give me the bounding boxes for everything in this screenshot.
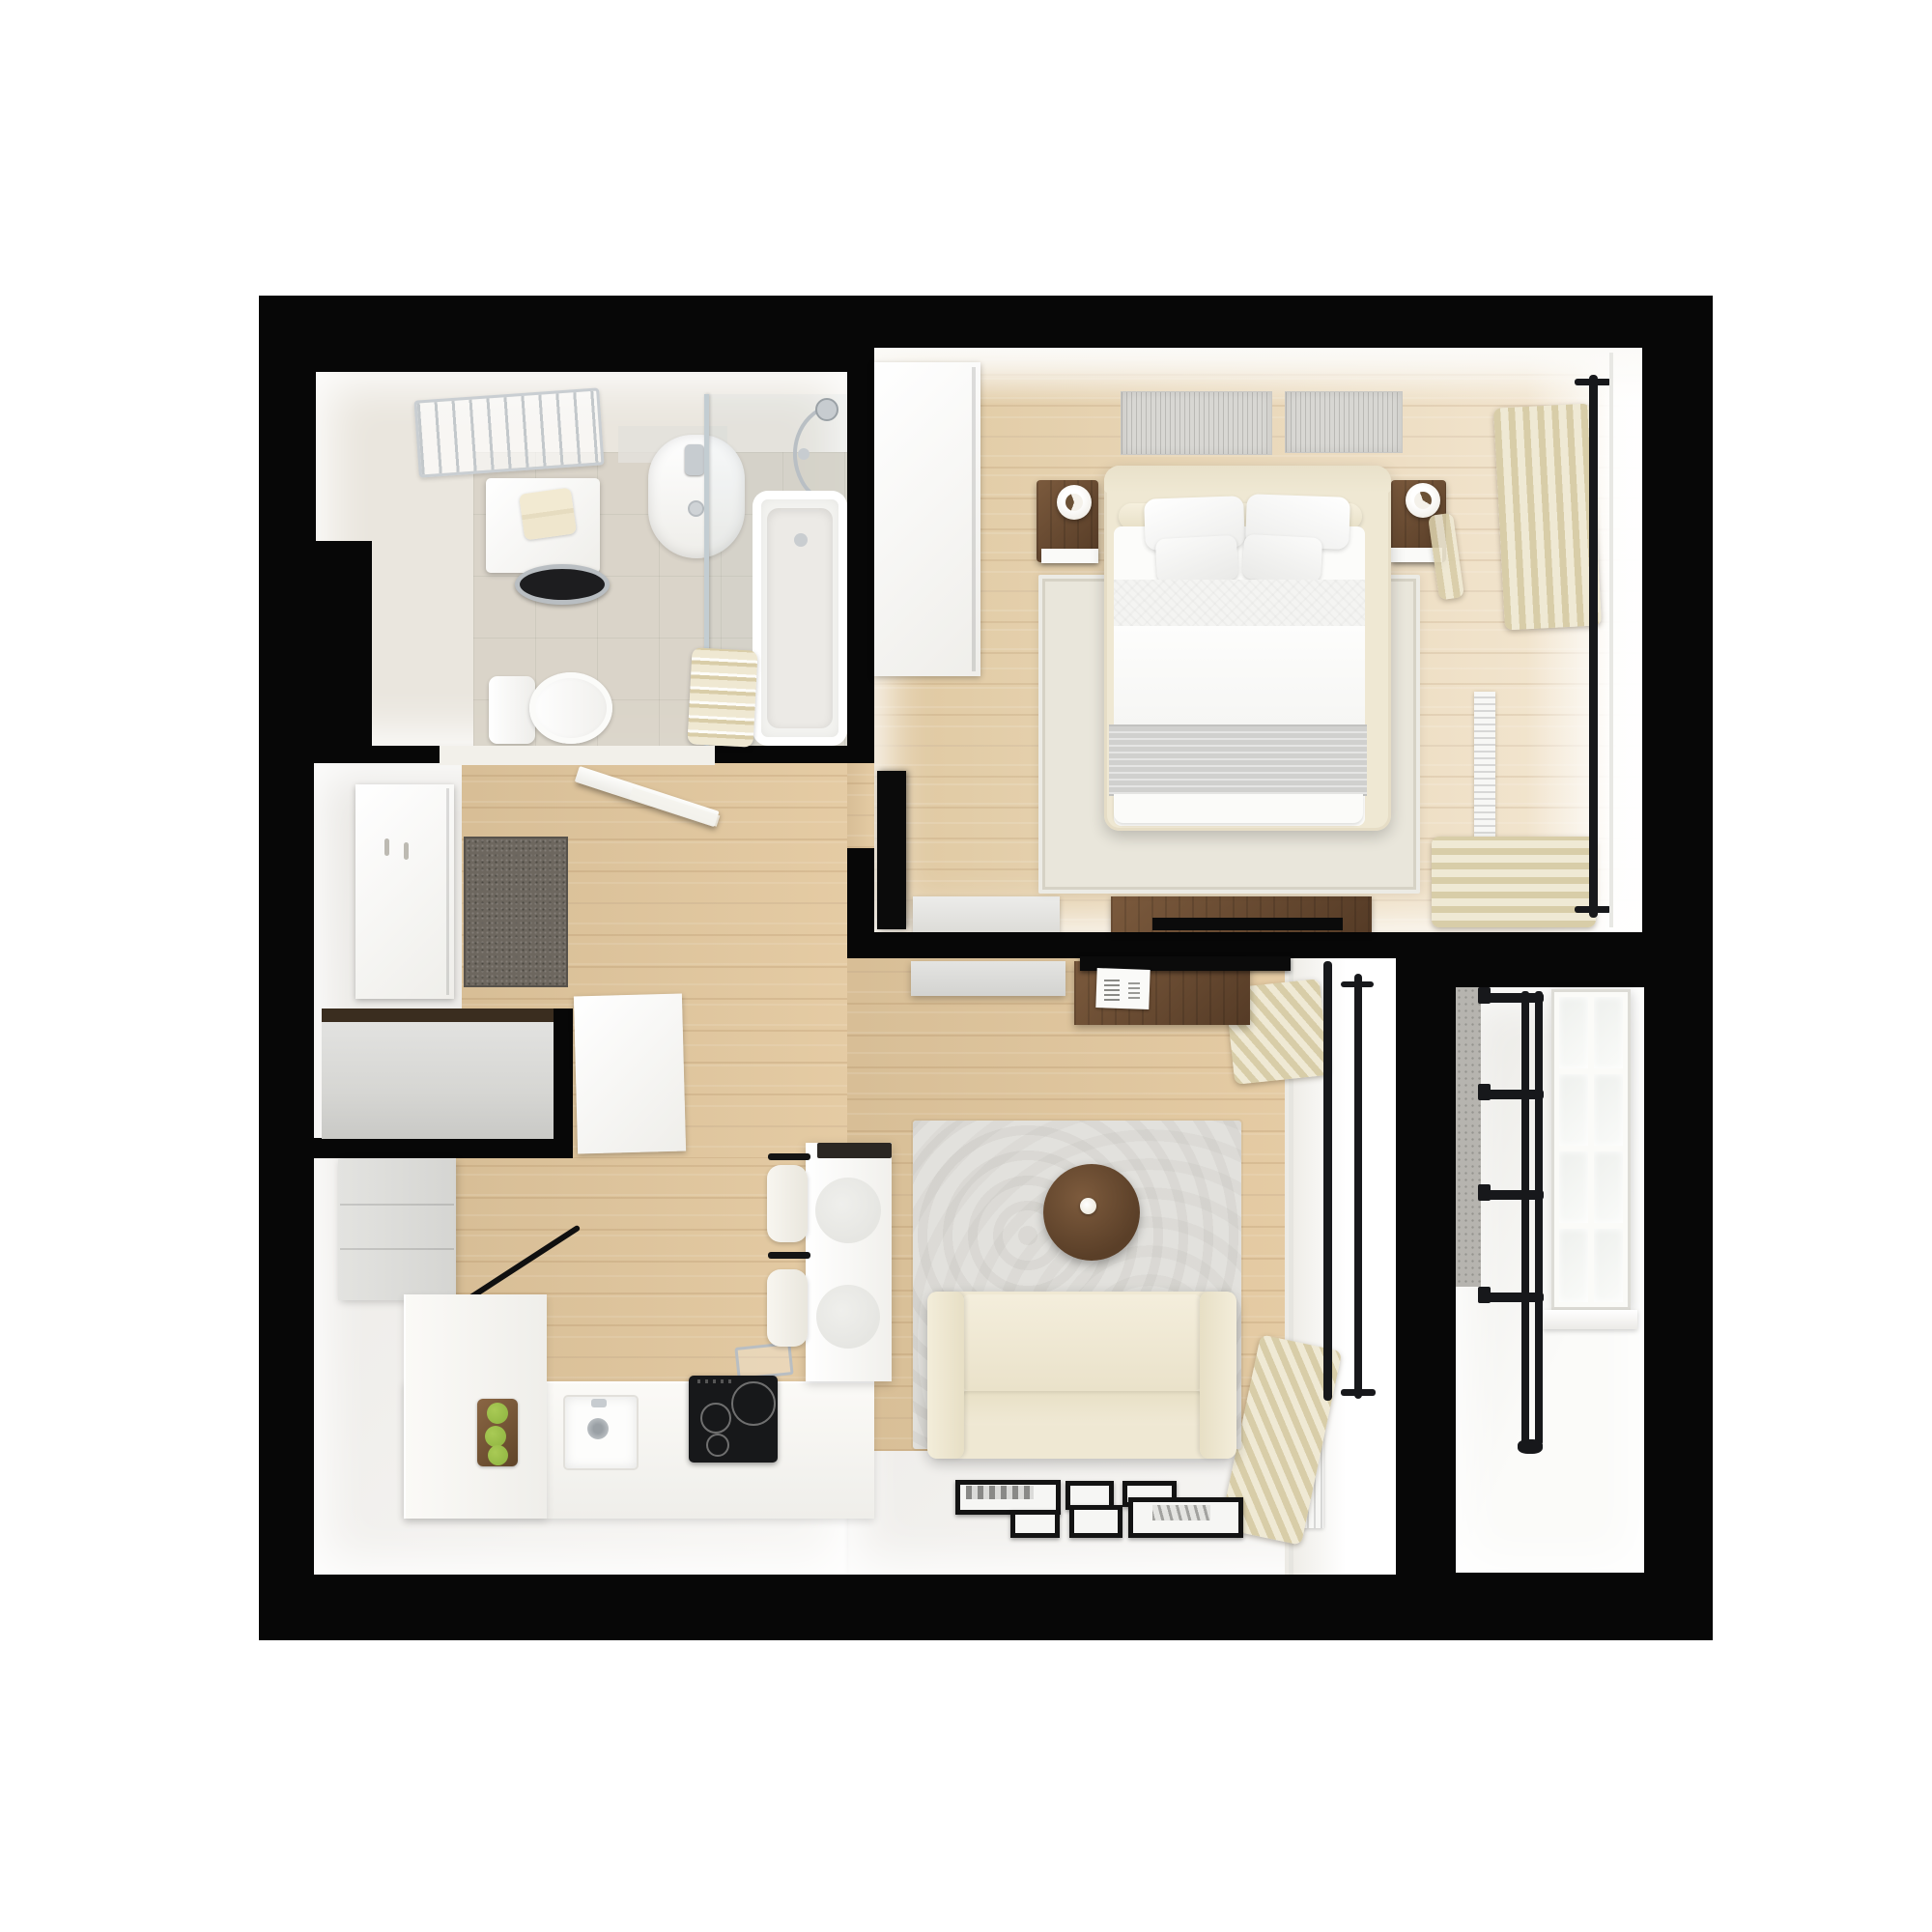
tv-bedroom-wall[interactable]	[877, 771, 906, 929]
chair-back-2[interactable]	[767, 1269, 808, 1347]
chair-frame-2	[768, 1252, 810, 1259]
railing-vertical-bar	[1521, 991, 1529, 1445]
shoe-cabinet-front[interactable]	[322, 1022, 554, 1139]
towel-radiator	[413, 387, 604, 477]
kitchen-hall-wall	[314, 1138, 573, 1158]
washer-drum	[515, 564, 610, 605]
art-book-text-lines-2	[1128, 980, 1140, 999]
basin-faucet	[685, 444, 704, 475]
window-pane-3	[1559, 1074, 1588, 1146]
bedroom-curtain-bottom	[1432, 837, 1596, 927]
window-pane-5	[1559, 1151, 1588, 1223]
sofa-seat	[962, 1391, 1202, 1426]
bedroom-wardrobe[interactable]	[874, 362, 980, 676]
bedroom-curtain-rod	[1589, 375, 1598, 918]
pan-rack	[734, 1342, 793, 1380]
living-wall-shelf	[911, 961, 1065, 996]
hall-wardrobe-seam	[446, 788, 449, 995]
chair-seat-2[interactable]	[816, 1285, 880, 1349]
floor-plan-canvas	[0, 0, 1932, 1932]
sheet-smooth	[1114, 626, 1365, 726]
cooktop-ring-medium	[700, 1403, 731, 1434]
picture-frame-2	[1010, 1510, 1060, 1538]
picture-frame-6-art	[1152, 1505, 1210, 1520]
railing-arm-1-cap	[1478, 987, 1491, 1004]
pillow-small-right	[1242, 534, 1322, 582]
kitchen-tall-units-seam-2	[340, 1248, 454, 1250]
duvet-foot-fold	[1114, 794, 1363, 823]
lamp-left-shade	[1065, 494, 1083, 511]
apple-2	[485, 1426, 506, 1447]
living-curtain-rod-2	[1354, 974, 1362, 1399]
railing-arm-2-cap	[1478, 1084, 1491, 1100]
bedroom-doorway-floor	[847, 763, 874, 848]
hall-wardrobe[interactable]	[355, 784, 454, 999]
bedroom-bench	[913, 896, 1060, 932]
ceiling-vent-1	[1121, 391, 1272, 455]
hall-stub-wall	[554, 1009, 573, 1154]
pillow-small-left	[1155, 535, 1238, 583]
lamp-right-shade	[1414, 492, 1432, 509]
toilet-tank	[489, 676, 535, 744]
nightstand-left-shelf	[1041, 549, 1098, 563]
tv-bedroom-console[interactable]	[1152, 918, 1343, 930]
window-pane-6	[1594, 1151, 1623, 1223]
balcony-concrete-strip	[1456, 987, 1481, 1287]
bedroom-wardrobe-seam	[972, 367, 976, 671]
railing-arm-3-cap	[1478, 1184, 1491, 1201]
folded-towels	[519, 487, 577, 540]
railing-arm-4-cap	[1478, 1287, 1491, 1303]
sofa-arm-left	[927, 1292, 964, 1459]
balcony-window-sill	[1543, 1310, 1637, 1329]
living-curtain-rod	[1323, 961, 1332, 1401]
wardrobe-handle-2[interactable]	[404, 842, 409, 860]
railing-vertical-bar-2	[1535, 991, 1543, 1445]
picture-frame-1-art	[966, 1486, 1034, 1499]
window-pane-8	[1594, 1229, 1623, 1302]
window-pane-1	[1559, 997, 1588, 1068]
entry-door-opening	[440, 746, 715, 765]
cooktop-ring-small	[706, 1434, 729, 1457]
bedroom-window-frame-line	[1609, 353, 1613, 927]
toilet-bowl	[529, 672, 612, 744]
living-rod-finial	[1341, 1389, 1376, 1396]
bedroom-rod-finial-bottom	[1575, 906, 1611, 913]
blanket-gray	[1109, 726, 1367, 794]
wardrobe-handle[interactable]	[384, 838, 389, 856]
doormat	[464, 837, 568, 987]
window-pane-4	[1594, 1074, 1623, 1146]
railing-base	[1518, 1439, 1543, 1454]
striped-towels	[687, 647, 757, 747]
kitchen-counter-left	[404, 1294, 547, 1519]
candle	[1080, 1198, 1096, 1214]
kitchen-tall-units[interactable]	[338, 1159, 456, 1300]
window-pane-2	[1594, 997, 1623, 1068]
chair-back-1[interactable]	[767, 1165, 808, 1242]
hall-tall-cabinet[interactable]	[574, 994, 686, 1154]
cooktop-controls[interactable]	[697, 1379, 736, 1383]
basin-drain	[688, 500, 704, 517]
sofa-arm-right	[1200, 1292, 1236, 1459]
serving-tray	[817, 1143, 892, 1158]
window-pane-7	[1559, 1229, 1588, 1302]
kitchen-sink-drain	[587, 1418, 609, 1439]
kitchen-faucet	[591, 1399, 607, 1407]
ceiling-vent-2	[1285, 391, 1403, 453]
apple-3	[488, 1445, 508, 1465]
shoe-cabinet-top	[322, 1009, 554, 1022]
picture-frame-4	[1069, 1505, 1122, 1538]
living-rod-tee	[1341, 981, 1374, 987]
bathroom-wall-notch	[316, 541, 372, 746]
bedroom-rod-finial-top	[1575, 379, 1611, 385]
art-book-text-lines	[1104, 978, 1120, 1001]
bedroom-curtain-top	[1493, 404, 1602, 631]
sofa-backrest	[962, 1294, 1202, 1391]
chair-frame-1	[768, 1153, 810, 1160]
chair-seat-1[interactable]	[815, 1178, 881, 1243]
bed-headboard	[1104, 466, 1391, 493]
kitchen-tall-units-seam	[340, 1204, 454, 1206]
bathtub-drain	[794, 533, 808, 547]
cooktop-ring-large	[731, 1381, 776, 1426]
apple-1	[487, 1403, 508, 1424]
